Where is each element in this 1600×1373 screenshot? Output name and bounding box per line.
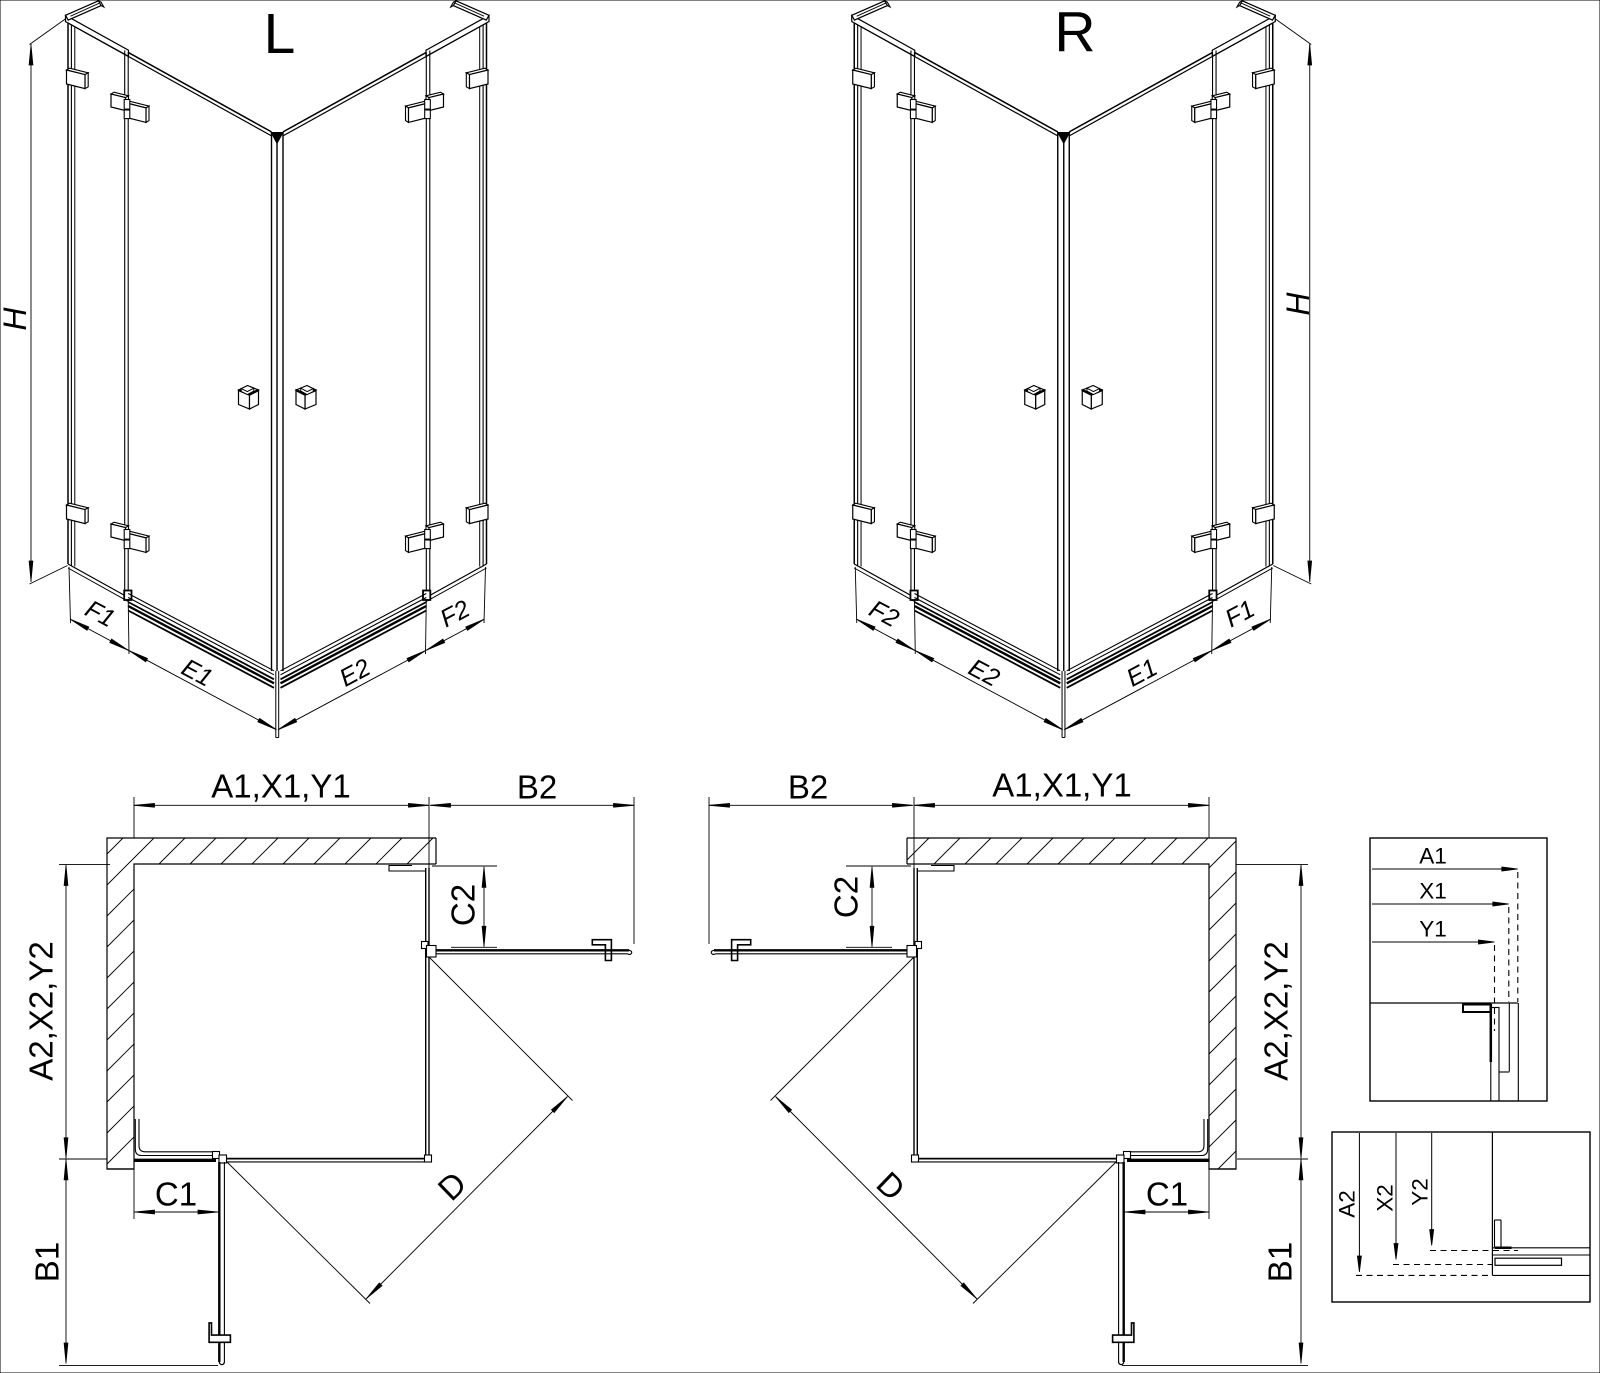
svg-text:X2: X2 [1373,1184,1398,1212]
svg-text:R: R [1054,0,1095,64]
svg-text:Y2: Y2 [1408,1178,1433,1206]
svg-text:C2: C2 [445,884,482,926]
svg-text:Y1: Y1 [1419,917,1447,942]
svg-text:H: H [0,307,33,331]
svg-text:B1: B1 [1262,1242,1299,1282]
svg-text:A1,X1,Y1: A1,X1,Y1 [211,768,350,805]
svg-text:C1: C1 [155,1176,197,1213]
svg-text:H: H [1280,292,1316,316]
svg-text:B2: B2 [788,769,828,806]
svg-text:A2,X2,Y2: A2,X2,Y2 [1258,941,1295,1080]
svg-text:L: L [264,2,296,66]
svg-text:A2: A2 [1335,1190,1360,1218]
svg-text:X1: X1 [1419,879,1447,904]
svg-text:C2: C2 [828,876,865,918]
svg-text:A1: A1 [1419,844,1447,869]
svg-text:C1: C1 [1146,1176,1188,1213]
svg-text:B2: B2 [517,769,557,806]
svg-text:B1: B1 [29,1242,66,1282]
svg-text:A1,X1,Y1: A1,X1,Y1 [992,767,1131,804]
svg-text:A2,X2,Y2: A2,X2,Y2 [23,941,60,1080]
